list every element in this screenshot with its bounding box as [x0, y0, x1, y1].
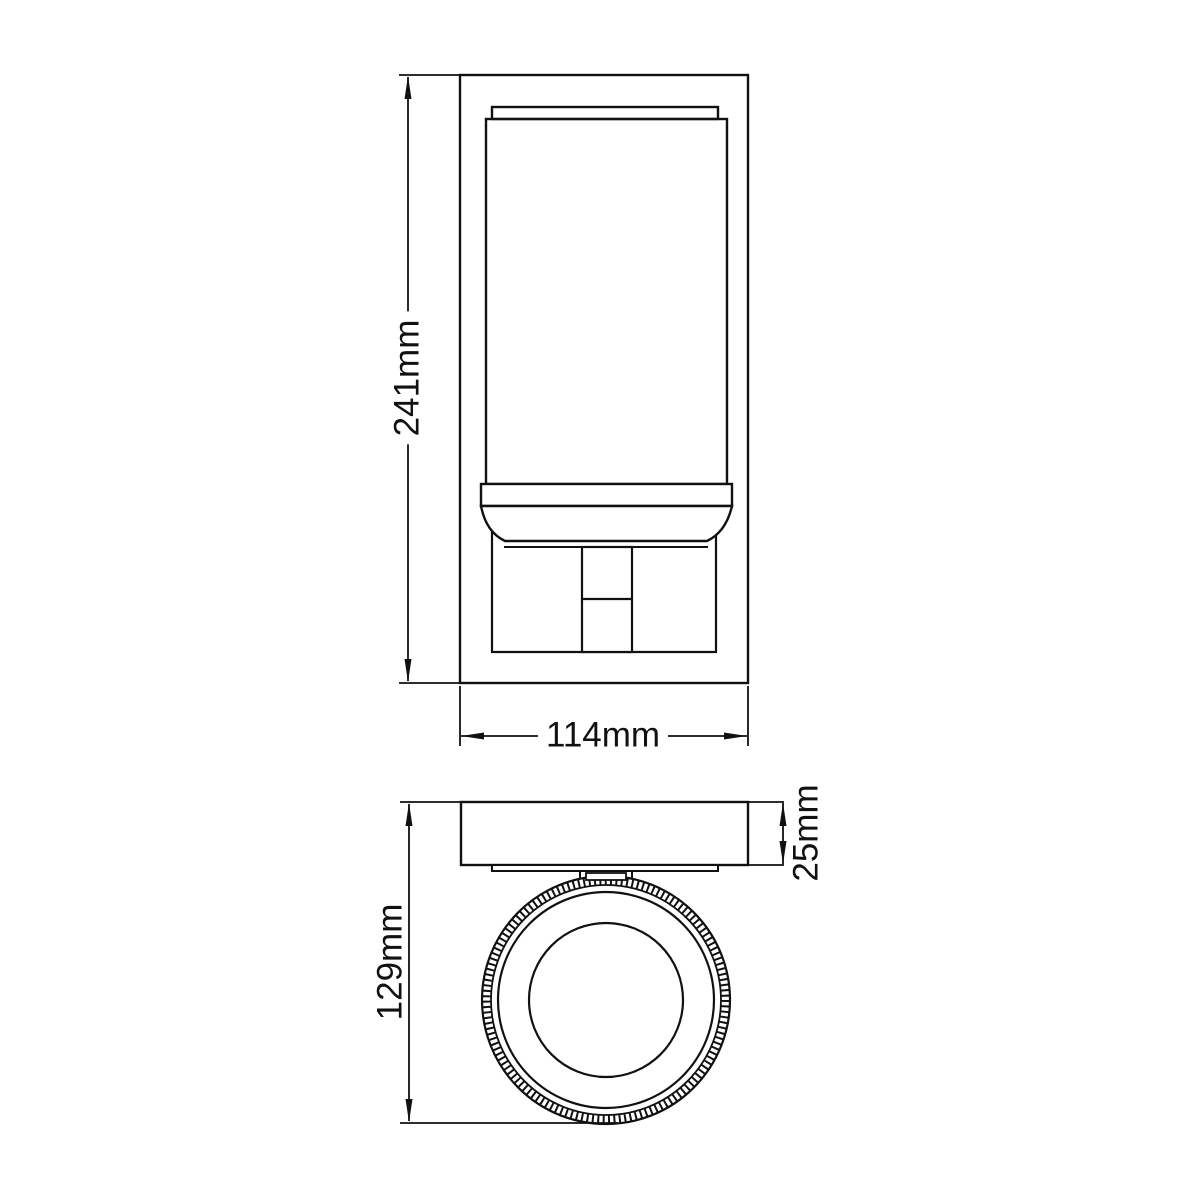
- ring-inner-edge: [498, 892, 714, 1108]
- arrowhead-up: [780, 803, 787, 826]
- knurl-texture: [487, 881, 726, 1120]
- dimension-label-backplate: 25mm: [789, 784, 824, 881]
- holder-ring: [482, 876, 730, 1124]
- drawing-canvas: 241mm 114mm 129mm 25mm: [0, 0, 1200, 1200]
- dimension-label-width: 114mm: [538, 718, 668, 753]
- knurl-inner-edge: [491, 885, 721, 1115]
- cylinder-body: [486, 119, 727, 484]
- arrowhead-up: [406, 803, 413, 826]
- cylinder-top-lip: [492, 107, 718, 119]
- top-plan-view: [400, 802, 787, 1124]
- arrowhead-down: [405, 659, 412, 682]
- arrowhead-down: [780, 841, 787, 864]
- arrowhead-down: [406, 1099, 413, 1122]
- arrowhead-right: [724, 733, 747, 740]
- glass-opening: [529, 923, 683, 1077]
- holder-collar: [481, 484, 732, 547]
- front-elevation-view: [399, 75, 748, 746]
- neck-block: [586, 873, 626, 880]
- arrowhead-left: [461, 733, 484, 740]
- arrowhead-up: [405, 76, 412, 99]
- dimension-label-height: 241mm: [390, 312, 425, 445]
- mounting-stem: [582, 547, 632, 652]
- dimension-backplate: [748, 802, 787, 865]
- technical-drawing: [0, 0, 1200, 1200]
- wall-plate: [461, 802, 748, 880]
- plate-lip: [492, 865, 718, 871]
- glass-cylinder: [486, 107, 727, 484]
- dimension-label-depth: 129mm: [373, 904, 408, 1021]
